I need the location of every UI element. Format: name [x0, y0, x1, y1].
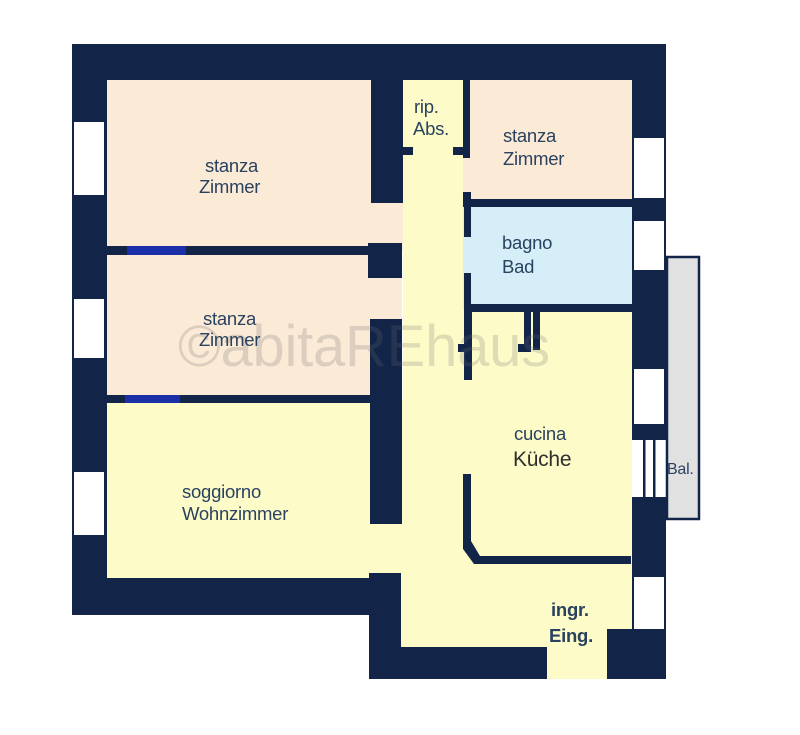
- svg-text:Bad: Bad: [502, 256, 534, 277]
- svg-text:stanza: stanza: [203, 308, 257, 329]
- svg-text:Bal.: Bal.: [667, 461, 694, 478]
- svg-text:rip.: rip.: [414, 96, 439, 117]
- svg-text:soggiorno: soggiorno: [182, 481, 261, 502]
- svg-text:Zimmer: Zimmer: [503, 148, 564, 169]
- svg-text:cucina: cucina: [514, 423, 567, 444]
- svg-text:bagno: bagno: [502, 232, 552, 253]
- svg-text:ingr.: ingr.: [551, 599, 589, 620]
- svg-text:Abs.: Abs.: [413, 118, 449, 139]
- svg-text:stanza: stanza: [503, 125, 557, 146]
- svg-text:Wohnzimmer: Wohnzimmer: [182, 503, 288, 524]
- svg-text:Eing.: Eing.: [549, 625, 593, 646]
- svg-text:Zimmer: Zimmer: [199, 329, 260, 350]
- svg-text:stanza: stanza: [205, 155, 259, 176]
- svg-text:Küche: Küche: [513, 448, 571, 471]
- svg-text:Zimmer: Zimmer: [199, 176, 260, 197]
